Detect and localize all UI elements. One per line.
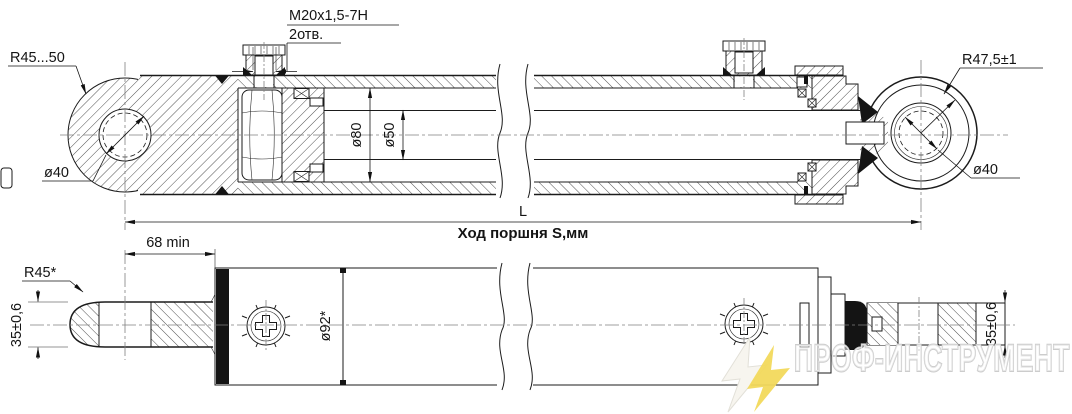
edge-tag bbox=[1, 168, 12, 188]
body-dia-label: ø92* bbox=[318, 310, 334, 341]
rod-eye-radius-label: R45...50 bbox=[10, 50, 65, 66]
technical-drawing-page: M20x1,5-7H 2отв. R45...50 ø40 ø80 ø50 bbox=[0, 0, 1072, 414]
rod-dia-label: ø50 bbox=[382, 123, 398, 148]
min-clearance-dim: 68 min bbox=[125, 235, 215, 295]
length-label: L bbox=[519, 204, 527, 220]
min-clearance-label: 68 min bbox=[146, 235, 190, 251]
rod-eye-hole-label: ø40 bbox=[44, 165, 69, 181]
top-section-view bbox=[1, 41, 977, 204]
head-eye-radius-dim: R47,5±1 bbox=[944, 52, 1043, 94]
length-dim: L Ход поршня S,мм bbox=[125, 204, 921, 242]
left-eye-side bbox=[70, 292, 216, 357]
eye-width-left-dim: 35±0,6 bbox=[9, 290, 68, 359]
right-eye-section bbox=[846, 77, 977, 189]
head-eye-radius-label: R47,5±1 bbox=[962, 52, 1017, 68]
weld-band bbox=[216, 269, 229, 384]
bore-dia-label: ø80 bbox=[349, 123, 365, 148]
eye-radius-dim: R45* bbox=[22, 265, 83, 292]
port-count-label: 2отв. bbox=[289, 27, 323, 43]
hydraulic-cylinder-drawing: M20x1,5-7H 2отв. R45...50 ø40 ø80 ø50 bbox=[0, 0, 1072, 414]
stroke-note-label: Ход поршня S,мм bbox=[458, 225, 589, 242]
port-thread-label: M20x1,5-7H bbox=[289, 8, 368, 24]
eye-radius-label: R45* bbox=[24, 265, 57, 281]
head-eye-hole-label: ø40 bbox=[973, 162, 998, 178]
eye-width-left-label: 35±0,6 bbox=[9, 303, 25, 347]
rod-eye-radius-dim: R45...50 bbox=[8, 50, 86, 94]
watermark-brand-text: ПРОФ-ИНСТРУМЕНТ bbox=[794, 338, 1070, 380]
head-eye-hole-dim: ø40 bbox=[905, 117, 1020, 178]
